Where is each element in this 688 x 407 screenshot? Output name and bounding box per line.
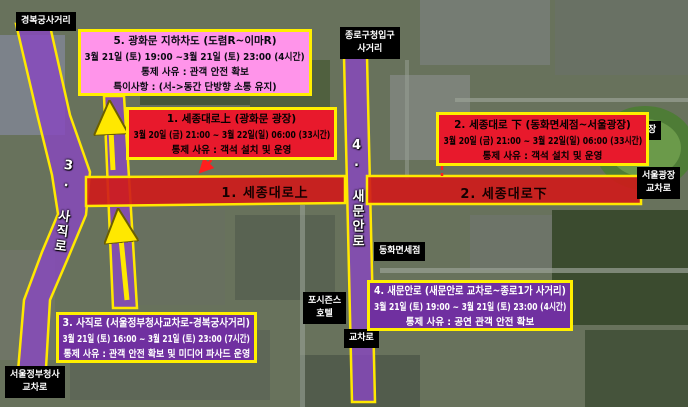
label-four-seasons-hotel: 포시즌스 호텔 [303, 292, 346, 324]
notice-gwanghwamun-underpass: 5. 광화문 지하차도 (도렴R~이마R) 3월 21일 (토) 19:00 ~… [78, 29, 312, 96]
label-line: 서울광장 [642, 170, 675, 183]
label-donghwa-duty-free: 동화면세점 [374, 242, 425, 261]
notice-period: 3월 21일 (토) 16:00 ~ 3월 21일 (토) 23:00 (7시간… [63, 331, 250, 345]
notice-period: 3월 20일 (금) 21:00 ~ 3월 22일(일) 06:00 (33시간… [443, 133, 642, 147]
notice-reason: 통제 사유 : 공연 관객 안전 확보 [406, 314, 535, 328]
notice-title: 2. 세종대로 下 (동화면세점~서울광장) [454, 117, 631, 132]
road-label-sejong-upper: 1. 세종대로上 [160, 182, 370, 201]
notice-reason: 통제 사유 : 관객 안전 확보 [141, 64, 249, 78]
label-gov-complex-crossing: 서울정부청사 교차로 [5, 366, 65, 398]
notice-period: 3월 21일 (토) 19:00 ~3월 21일 (토) 23:00 (4시간) [85, 49, 305, 63]
label-line: 서울정부청사 [10, 369, 60, 382]
label-line: 교차로 [10, 382, 60, 395]
label-crossing: 교차로 [344, 329, 379, 348]
label-line: 사거리 [345, 43, 395, 56]
label-line: 포시즌스 [308, 295, 341, 308]
notice-period: 3월 20일 (금) 21:00 ~ 3월 22일(일) 06:00 (33시간… [133, 127, 330, 141]
label-line: 호텔 [308, 308, 341, 321]
label-jongno-gucheong-intersection: 종로구청입구 사거리 [340, 27, 400, 59]
notice-title: 3. 사직로 (서울정부청사교차로-경복궁사거리) [63, 315, 250, 330]
notice-title: 5. 광화문 지하차도 (도렴R~이마R) [113, 33, 276, 48]
notice-sejong-upper: 1. 세종대로上 (광화문 광장) 3월 20일 (금) 21:00 ~ 3월 … [126, 107, 337, 160]
label-seoul-plaza-crossing: 서울광장 교차로 [637, 167, 680, 199]
notice-reason: 통제 사유 : 객석 설치 및 운영 [172, 142, 292, 156]
notice-note: 특이사항 : (서->동간 단방향 소통 유지) [113, 79, 276, 93]
notice-sejong-lower: 2. 세종대로 下 (동화면세점~서울광장) 3월 20일 (금) 21:00 … [436, 112, 649, 166]
notice-period: 3월 21일 (토) 19:00 ~ 3월 21일 (토) 23:00 (4시간… [374, 299, 566, 313]
notice-title: 1. 세종대로上 (광화문 광장) [167, 111, 296, 126]
label-gyeongbokgung-intersection: 경복궁사거리 [16, 12, 76, 31]
road-label-saemunan: 4. 새문안로 [347, 138, 366, 249]
traffic-control-map: 1. 세종대로上 2. 세종대로下 3. 사직로 4. 새문안로 경복궁사거리 … [0, 0, 688, 407]
notice-reason: 통제 사유 : 객석 설치 및 운영 [483, 148, 603, 162]
label-line: 종로구청입구 [345, 30, 395, 43]
label-line: 교차로 [642, 183, 675, 196]
notice-title: 4. 새문안로 (새문안로 교차로~종로1가 사거리) [374, 283, 566, 298]
road-label-sejong-lower: 2. 세종대로下 [399, 183, 609, 202]
notice-saemunan: 4. 새문안로 (새문안로 교차로~종로1가 사거리) 3월 21일 (토) 1… [367, 280, 573, 331]
notice-sajik: 3. 사직로 (서울정부청사교차로-경복궁사거리) 3월 21일 (토) 16:… [56, 312, 257, 363]
notice-reason: 통제 사유 : 관객 안전 확보 및 미디어 파사드 운영 [63, 346, 250, 360]
one-way-arrow-up-north [110, 110, 113, 170]
